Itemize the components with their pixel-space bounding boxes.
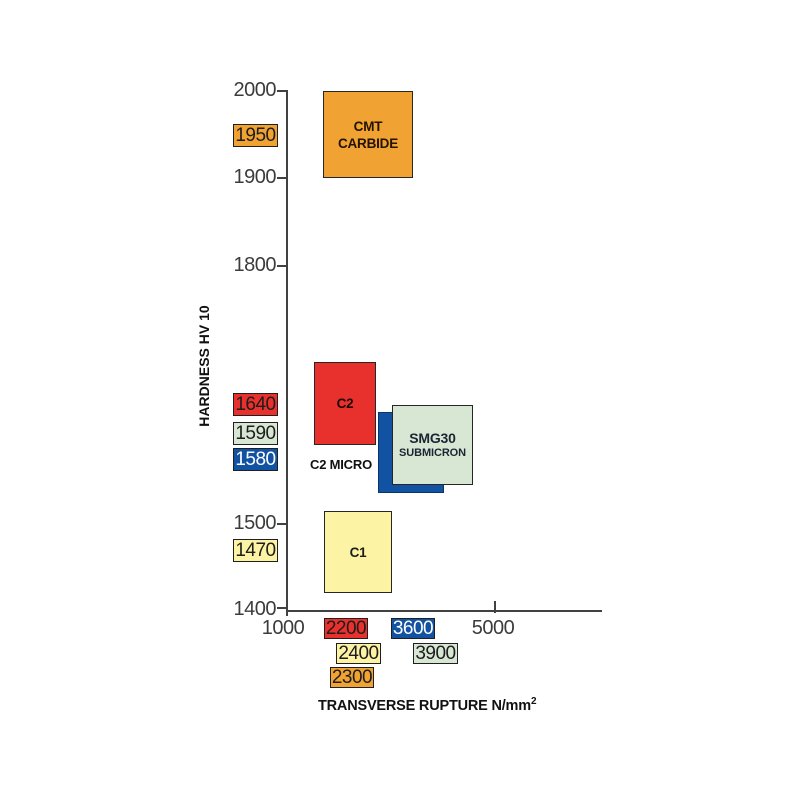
hardness-chip-smg30: 1590 — [233, 422, 278, 445]
material-label: C2 — [337, 395, 354, 412]
material-label: SUBMICRON — [399, 446, 466, 460]
x-tick — [494, 601, 496, 613]
material-box-c1: C1 — [324, 511, 392, 593]
rupture-chip-c2: 2200 — [324, 618, 368, 639]
x-tick-label: 1000 — [253, 617, 313, 639]
material-box-smg30-submicron: SMG30 SUBMICRON — [392, 405, 473, 485]
x-axis-line — [286, 610, 602, 612]
material-label: C1 — [350, 544, 367, 561]
y-axis-title: HARDNESS HV 10 — [196, 296, 216, 436]
hardness-chip-c2-micro: 1580 — [233, 448, 278, 471]
x-axis-title: TRANSVERSE RUPTURE N/mm2 — [318, 696, 518, 714]
material-label: CARBIDE — [338, 135, 398, 152]
y-tick — [277, 607, 286, 609]
x-axis-title-text: TRANSVERSE RUPTURE N/mm — [318, 698, 531, 714]
y-tick-label: 1900 — [220, 166, 276, 188]
material-label-c2-micro: C2 MICRO — [306, 457, 376, 472]
hardness-chip-c2: 1640 — [233, 393, 278, 416]
rupture-chip-c1: 2400 — [336, 643, 381, 664]
y-tick — [277, 523, 286, 525]
y-tick — [277, 177, 286, 179]
x-tick-label: 5000 — [463, 617, 523, 639]
y-tick-label: 2000 — [220, 79, 276, 101]
y-axis-line — [286, 90, 288, 612]
material-label: SMG30 — [409, 430, 455, 446]
rupture-chip-cmt: 2300 — [330, 667, 374, 688]
hardness-chip-c1: 1470 — [233, 539, 278, 562]
rupture-chip-smg30: 3900 — [413, 643, 458, 664]
y-tick — [277, 90, 286, 92]
x-tick — [286, 601, 288, 616]
x-axis-title-superscript: 2 — [531, 696, 536, 707]
material-label: CMT — [354, 118, 383, 135]
material-box-c2: C2 — [314, 362, 376, 445]
hardness-vs-rupture-chart: 2000 1900 1800 1500 1400 1000 5000 HARDN… — [0, 0, 800, 800]
hardness-chip-cmt: 1950 — [233, 124, 278, 147]
rupture-chip-c2-micro: 3600 — [391, 618, 435, 639]
material-box-cmt-carbide: CMT CARBIDE — [323, 91, 413, 178]
y-tick-label: 1500 — [220, 512, 276, 534]
y-tick-label: 1800 — [220, 254, 276, 276]
y-tick — [277, 265, 286, 267]
